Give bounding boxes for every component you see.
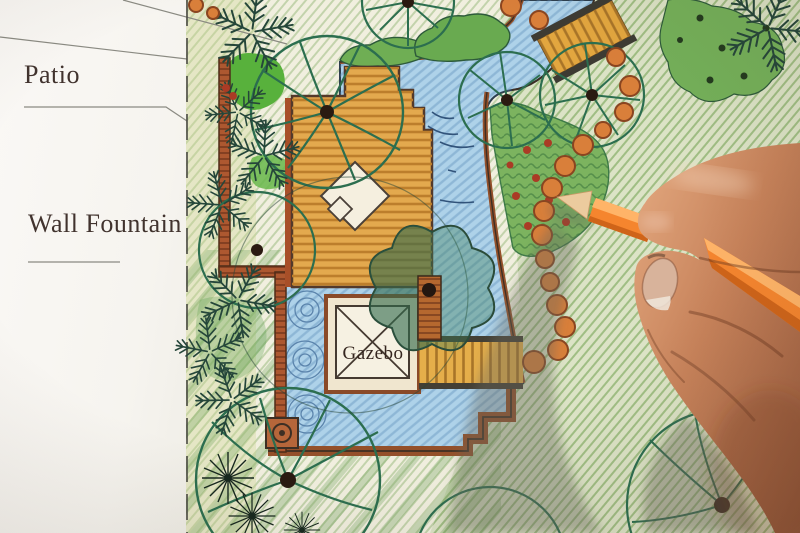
plan-drawing: [0, 0, 800, 533]
landscape-plan-photo: Patio Wall Fountain Gazebo: [0, 0, 800, 533]
label-gazebo: Gazebo: [327, 343, 419, 365]
patio-leader-line: [24, 107, 187, 121]
label-wall-fountain: Wall Fountain: [28, 209, 182, 239]
label-patio: Patio: [24, 60, 80, 90]
